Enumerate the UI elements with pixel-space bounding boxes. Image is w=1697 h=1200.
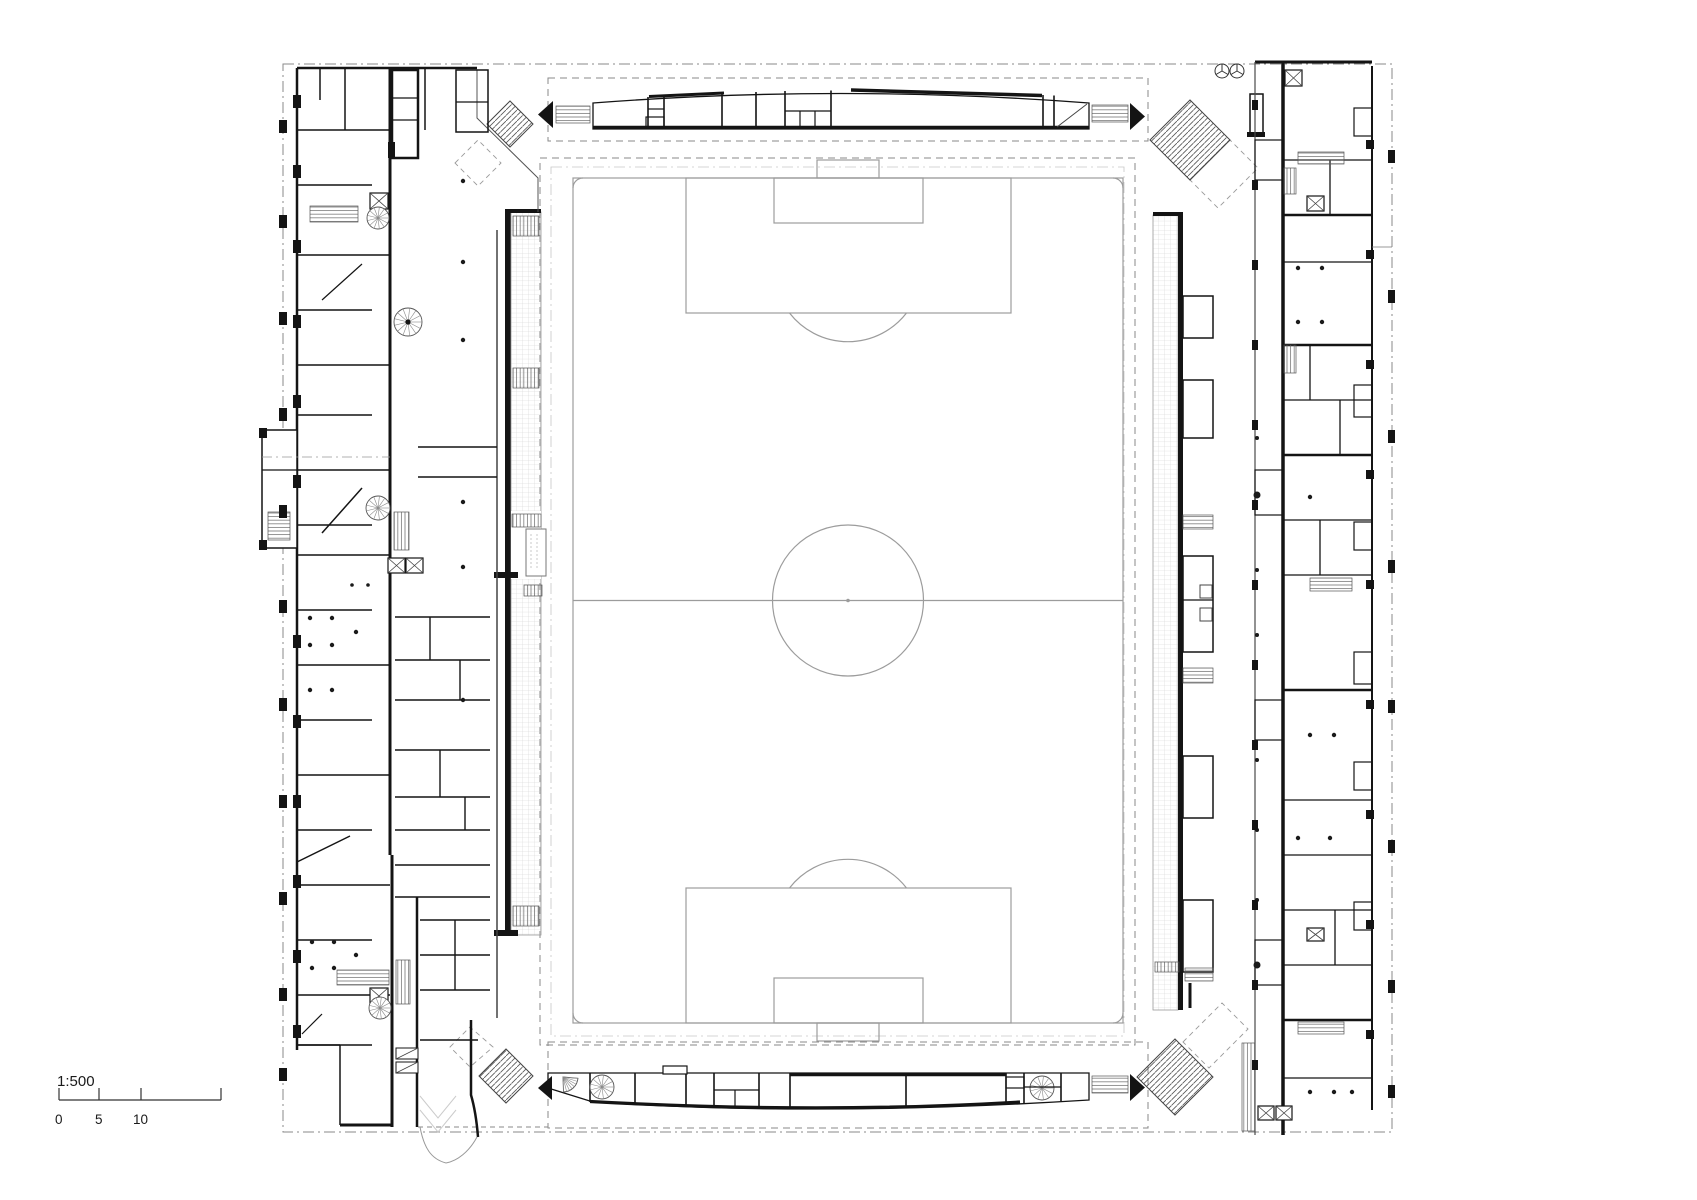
east-wall-pier [1366,140,1374,149]
west-wall-pier [293,165,301,178]
east-stand-room [1183,900,1213,972]
site-boundary-pier [1388,840,1395,853]
site-boundary-pier [279,408,287,421]
scale-tick-label-5: 5 [95,1112,103,1127]
west-wing-room-columns [332,966,336,970]
west-wall-pier [293,950,301,963]
site-boundary-pier [279,215,287,228]
east-wing-stair [1298,1022,1344,1034]
east-wing-closet [1354,108,1372,136]
site-boundary-pier [279,698,287,711]
east-concourse-columns-large [1254,962,1261,969]
west-stand-stair [513,906,539,926]
north-stand-outline [593,94,1089,130]
ne-corner-stair-ramp [1150,100,1230,180]
pitch-goal-area-north [774,178,923,223]
west-concourse-columns [461,565,465,569]
west-wall-pier [293,475,301,488]
south-west-entry-arrow [538,1076,552,1100]
east-wing-room-columns [1350,1090,1354,1094]
east-stand-stair [1183,515,1213,529]
east-concourse-columns [1255,633,1259,637]
east-wing-stair [1310,578,1352,591]
east-concourse-columns [1255,436,1259,440]
west-wing-room-columns [350,583,354,587]
east-wall-pier [1366,250,1374,259]
east-stand-seating-band [1153,215,1178,1010]
west-wing-stair [337,970,389,985]
west-wing-room-columns [310,966,314,970]
west-wing-room-columns [330,616,334,620]
scale-tick-label-10: 10 [133,1112,148,1127]
east-wing-stair [1298,152,1344,164]
pitch-goal-north [817,160,879,178]
south-ramp-curve [446,1137,477,1163]
east-colonnade-pier [1252,180,1258,190]
west-wing-room-columns [354,630,358,634]
west-stand-stair [513,368,539,388]
east-stand-room [1183,380,1213,438]
west-wing-room-columns [354,953,358,957]
east-colonnade-pier [1252,740,1258,750]
scale-ratio-label: 1:500 [57,1073,95,1090]
west-wall-pier [293,395,301,408]
pitch-penalty-area-south [686,888,1011,1023]
east-stand-north-wall [1247,132,1265,137]
east-concourse-columns [1255,758,1259,762]
site-overhang-outline [283,64,1392,1132]
west-wall-pier [293,240,301,253]
west-wall-pier [293,95,301,108]
east-colonnade-pier [1252,1060,1258,1070]
site-boundary-pier [279,505,287,518]
east-wing-room-columns [1328,836,1332,840]
east-colonnade-pier [1252,260,1258,270]
site-boundary-pier [1388,980,1395,993]
west-wing-room-columns [310,940,314,944]
nw-corner-stair-ramp [487,101,533,147]
east-stand-room [1183,756,1213,818]
east-colonnade-pier [1252,900,1258,910]
east-wing-room-columns [1320,266,1324,270]
plan-layer [59,62,1395,1163]
floor-plan-page: 1:500 0 5 10 [0,0,1697,1200]
north-stand-west-ramp [556,106,590,123]
pitch-surround-dashed [540,158,1135,1045]
east-wing-room-columns [1332,733,1336,737]
west-wall-pier [293,315,301,328]
east-wall-pier [1366,360,1374,369]
west-wing-angled-wall [322,264,362,300]
west-wing-stair [310,206,358,222]
west-tunnel-box [526,529,546,576]
west-wing-stair [396,960,410,1004]
east-wall-pier [1366,470,1374,479]
east-wing-room-columns [1308,733,1312,737]
west-wall-pier [293,875,301,888]
east-colonnade-pier [1252,820,1258,830]
west-stand-step-block [524,585,542,596]
west-wing-stair-tower [392,70,418,158]
pitch-goal-area-south [774,978,923,1023]
east-colonnade-pier [1252,580,1258,590]
east-colonnade-room [1255,700,1283,740]
west-wing-room-columns [366,583,370,587]
west-annex-pier [259,540,267,550]
east-colonnade-room [1255,140,1283,180]
site-boundary-pier [279,312,287,325]
west-wing-room-columns [308,616,312,620]
site-boundary-pier [279,120,287,133]
pitch-penalty-area-north [686,178,1011,313]
south-stand-bump-room [663,1066,687,1074]
east-stand-room [1183,556,1213,652]
west-wing-ne-room [456,70,488,132]
west-wing-room-columns [330,688,334,692]
scale-tick-label-0: 0 [55,1112,63,1127]
site-boundary-pier [1388,150,1395,163]
pitch-goal-south [817,1023,879,1041]
west-wing-room-columns [332,940,336,944]
west-wing-angled-wall [297,836,350,862]
west-concourse-columns [461,179,465,183]
site-boundary-pier [279,600,287,613]
west-wing-room-columns [330,643,334,647]
west-wing-spiral-stair [405,319,410,324]
east-wing-room-columns [1296,836,1300,840]
south-ramp-chevron [420,1096,456,1118]
south-ramp-chevron [420,1110,456,1132]
pitch-surround-dashdot [551,167,1124,1036]
north-east-entry-arrow [1130,103,1145,130]
pitch-penalty-arc-north [790,313,907,342]
west-wing-room-columns [308,688,312,692]
west-wall-pier [293,795,301,808]
west-concourse-columns [461,338,465,342]
east-wing-closet [1354,385,1372,417]
pitch-corner-arc [1113,1013,1123,1023]
pitch-penalty-arc-south [790,859,907,888]
west-tunnel-steps [512,514,541,527]
west-stand-stair [513,216,539,236]
east-wing-closet [1354,522,1372,550]
pitch-corner-arc [573,1013,583,1023]
east-concourse-columns [1255,568,1259,572]
north-west-entry-arrow [538,101,553,128]
site-boundary-pier [279,988,287,1001]
west-wing-room-columns [308,643,312,647]
west-concourse-columns [461,260,465,264]
east-wing-room-columns [1296,266,1300,270]
east-wing-room-columns [1308,1090,1312,1094]
west-wall-pier [293,1025,301,1038]
site-boundary-pier [279,1068,287,1081]
west-wing-stair [394,512,409,550]
east-concourse-columns-large [1254,492,1261,499]
west-wing-angled-wall [322,488,362,533]
east-wall-pier [1366,810,1374,819]
site-boundary-pier [1388,560,1395,573]
east-stand-room [1183,296,1213,338]
west-wing-se-boundary [471,1020,478,1137]
east-wall-pier [1366,700,1374,709]
east-wing-closet [1354,762,1372,790]
site-boundary-pier [1388,430,1395,443]
west-concourse-columns [461,698,465,702]
east-colonnade-pier [1252,500,1258,510]
west-wall-pier [293,715,301,728]
east-stand-south-stair [1185,968,1213,981]
site-boundary-pier [279,795,287,808]
east-colonnade-pier [1252,980,1258,990]
west-concourse-columns [461,500,465,504]
east-wing-room-columns [1308,495,1312,499]
pitch-center-mark [846,599,850,603]
east-stand-stair [1183,668,1213,683]
pitch-corner-arc [1113,178,1123,188]
west-wall-pier [293,635,301,648]
east-wing-room-columns [1320,320,1324,324]
west-annex-pier [259,428,267,438]
east-wing-room-columns [1332,1090,1336,1094]
west-wing-wall-pier [388,142,395,158]
site-boundary-pier [1388,700,1395,713]
east-wing-stair [1284,168,1296,194]
east-colonnade-pier [1252,340,1258,350]
west-stand-cap [505,209,541,213]
stadium-floor-plan: 1:500 0 5 10 [0,0,1697,1200]
site-boundary-pier [1388,290,1395,303]
east-colonnade-pier [1252,660,1258,670]
pitch-corner-arc [573,178,583,188]
east-wall-pier [1366,580,1374,589]
east-wing-stair [1284,345,1296,373]
east-wall-pier [1366,920,1374,929]
east-wing-stair [1242,1043,1255,1131]
east-colonnade-pier [1252,100,1258,110]
east-wall-pier [1366,1030,1374,1039]
east-stand-cap [1153,212,1183,216]
site-boundary-pier [1388,1085,1395,1098]
east-colonnade-pier [1252,420,1258,430]
east-wing-closet [1354,652,1372,684]
west-wing-angled-wall [302,1014,322,1034]
north-stand-east-ramp [1092,105,1128,122]
site-boundary-pier [279,892,287,905]
east-stand-south-steps [1155,962,1179,972]
sw-corner-stair-ramp [479,1049,533,1103]
south-stand-east-ramp [1092,1076,1128,1093]
east-wing-room-columns [1296,320,1300,324]
